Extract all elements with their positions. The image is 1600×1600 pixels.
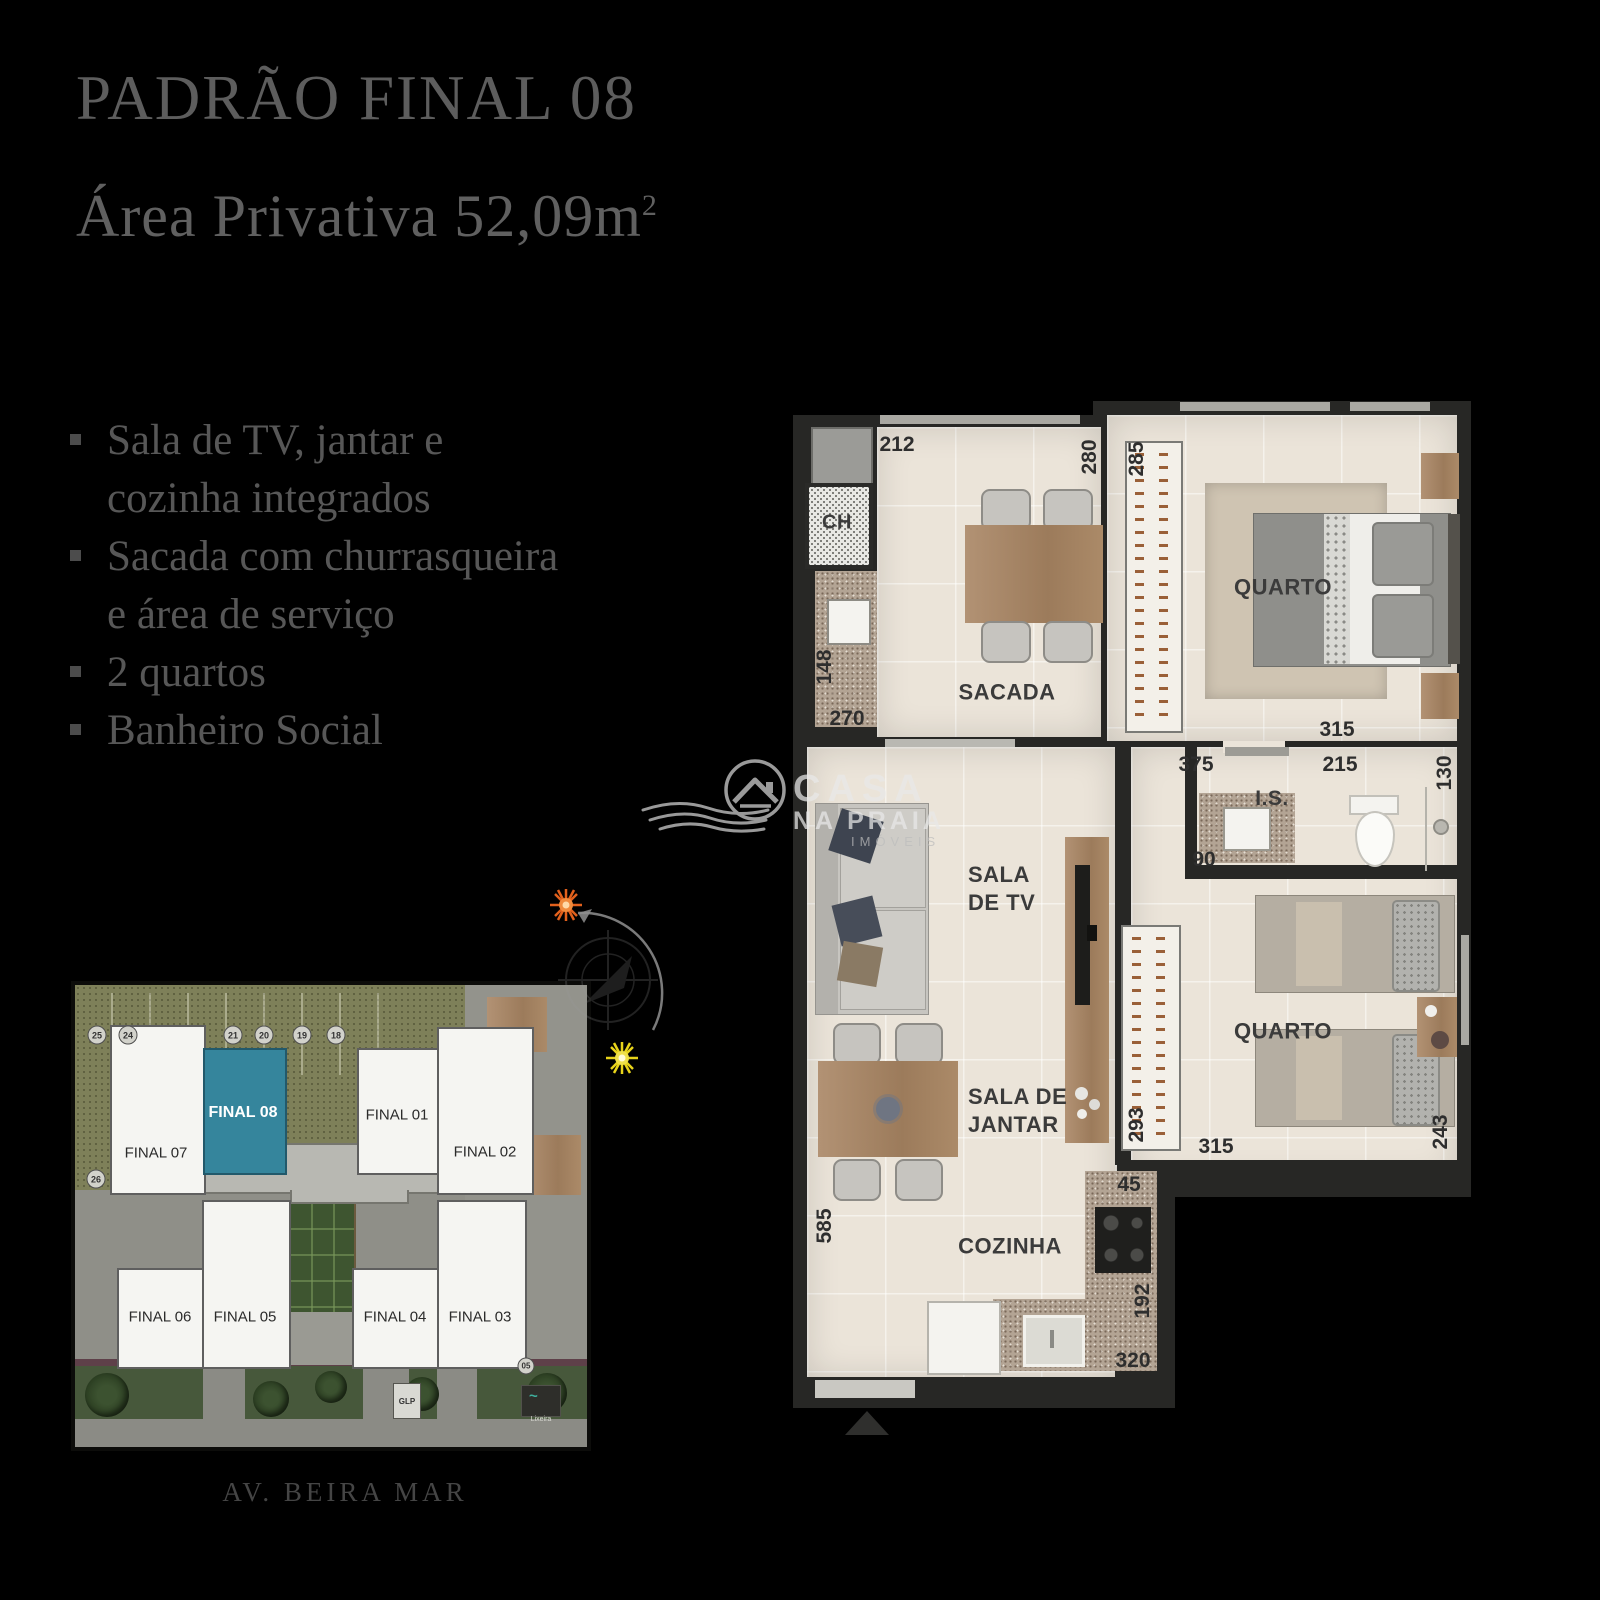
feature-text: 2 quartos <box>107 644 266 702</box>
unit-label-final-05: FINAL 05 <box>214 1309 277 1326</box>
dim-label: 280 <box>1078 439 1102 474</box>
pillow-tan <box>837 941 883 987</box>
unit-label-final-01: FINAL 01 <box>366 1107 429 1124</box>
unit-final-02 <box>437 1027 534 1195</box>
dim-label: 192 <box>1131 1283 1155 1318</box>
lixeira-label: Lixeira <box>521 1416 561 1423</box>
parking-spot-number: 24 <box>119 1026 138 1045</box>
vase <box>1431 1031 1449 1049</box>
tree-icon <box>315 1371 347 1403</box>
shower-head <box>1433 819 1449 835</box>
parking-spot-number: 21 <box>224 1026 243 1045</box>
dim-label: 130 <box>1433 755 1457 790</box>
logo-tagline: IMÓVEIS <box>851 834 940 848</box>
headboard <box>1448 514 1460 664</box>
unit-final-07 <box>110 1025 206 1195</box>
dim-label: 270 <box>829 707 864 731</box>
parking-spot-number: 18 <box>327 1026 346 1045</box>
entry-sill <box>815 1380 915 1398</box>
house-chimney-icon <box>766 782 773 793</box>
chair <box>895 1023 943 1065</box>
dim-label: 320 <box>1115 1349 1150 1373</box>
feature-item: Sala de TV, jantar e cozinha integrados <box>70 412 670 528</box>
parking-spot-number: 19 <box>293 1026 312 1045</box>
unit-final-05 <box>202 1200 291 1369</box>
bullet-square-icon <box>70 666 81 677</box>
dim-label: 585 <box>813 1208 837 1243</box>
dim-label: 148 <box>813 649 837 684</box>
faucet <box>1050 1330 1054 1348</box>
label-sala-tv: SALA DE TV <box>968 861 1035 916</box>
courtyard-path <box>287 1312 352 1365</box>
site-key-plan: FINAL 08 FINAL 07 FINAL 01 FINAL 02 FINA… <box>75 985 587 1447</box>
dim-label: 212 <box>879 433 914 457</box>
label-quarto-1: QUARTO <box>1234 573 1332 601</box>
label-quarto-2: QUARTO <box>1234 1017 1332 1045</box>
tv-rack <box>1065 837 1109 1143</box>
dim-label: 215 <box>1322 753 1357 777</box>
chair <box>833 1023 881 1065</box>
dim-label: 45 <box>1117 1173 1140 1197</box>
trash-enclosure: ~ <box>521 1385 561 1417</box>
entry-arrow-icon <box>845 1411 889 1435</box>
dim-label: 243 <box>1429 1114 1453 1149</box>
bed-blanket-fold <box>1296 902 1342 986</box>
wave-icon <box>660 824 764 831</box>
compass-rose-icon <box>558 930 658 1030</box>
sunrise-sun-icon <box>606 1042 638 1074</box>
label-sala-jantar: SALA DE JANTAR <box>968 1083 1067 1138</box>
kitchen-sink <box>1023 1315 1085 1367</box>
unit-label-final-03: FINAL 03 <box>449 1309 512 1326</box>
dim-label: 285 <box>1125 441 1149 476</box>
courtyard-garden <box>287 1200 356 1314</box>
window <box>880 415 1080 424</box>
parking-spot-number: 26 <box>87 1170 106 1189</box>
arrowhead-icon <box>578 909 592 923</box>
decor-circle <box>1077 1109 1087 1119</box>
dining-table <box>818 1061 958 1157</box>
unit-label-final-06: FINAL 06 <box>129 1309 192 1326</box>
page-title: PADRÃO FINAL 08 <box>76 62 637 135</box>
area-subtitle: Área Privativa 52,09m2 <box>76 182 658 251</box>
watermark-logo: CASA NA PRAIA IMÓVEIS <box>638 748 968 848</box>
lobby-entry <box>290 1190 409 1204</box>
shower-divider <box>1425 787 1427 871</box>
sidewalk <box>75 1419 587 1447</box>
nightstand-knob <box>1425 1005 1437 1017</box>
nightstand <box>1417 997 1457 1057</box>
area-subtitle-sup: 2 <box>642 189 658 222</box>
parking-spot-number: 25 <box>88 1026 107 1045</box>
bathroom-sink <box>1223 807 1271 851</box>
unit-label-final-04: FINAL 04 <box>364 1309 427 1326</box>
logo-name: CASA <box>793 768 929 810</box>
tv-mount <box>1087 925 1097 941</box>
closet <box>1125 441 1183 733</box>
bullet-square-icon <box>70 724 81 735</box>
door-leaf <box>1225 747 1289 756</box>
pillow <box>1372 594 1434 658</box>
feature-text: Sacada com churrasqueira e área de servi… <box>107 528 558 644</box>
nightstand <box>1421 453 1459 499</box>
dim-label: 90 <box>1192 848 1215 872</box>
sliding-door <box>885 739 1015 747</box>
cooktop <box>1095 1207 1151 1273</box>
dim-label: 293 <box>1125 1107 1149 1142</box>
closet-hangers <box>1135 453 1144 719</box>
feature-text: Banheiro Social <box>107 702 383 760</box>
dim-label: 315 <box>1198 1135 1233 1159</box>
label-churrasqueira: CH <box>822 511 852 536</box>
spot-number: 05 <box>518 1358 535 1375</box>
logo-name2: NA PRAIA <box>793 807 945 835</box>
balcony-table <box>965 525 1103 623</box>
sunset-sun-icon <box>550 889 582 921</box>
dim-label: 315 <box>1319 718 1354 742</box>
bed-blanket-fold <box>1296 1036 1342 1120</box>
unit-final-03 <box>437 1200 527 1369</box>
chair <box>895 1159 943 1201</box>
logo-circle <box>726 761 784 819</box>
chair <box>833 1159 881 1201</box>
feature-list: Sala de TV, jantar e cozinha integrados … <box>70 412 670 760</box>
closet-hangers <box>1159 453 1168 719</box>
label-cozinha: COZINHA <box>958 1232 1062 1260</box>
fridge <box>927 1301 1001 1375</box>
closet-hangers <box>1156 937 1165 1137</box>
unit-label-final-08: FINAL 08 <box>208 1104 277 1122</box>
feature-text: Sala de TV, jantar e cozinha integrados <box>107 412 443 528</box>
unit-label-final-07: FINAL 07 <box>125 1145 188 1162</box>
decor-circle <box>1089 1099 1100 1110</box>
nightstand <box>1421 673 1459 719</box>
decor-circle <box>1075 1087 1088 1100</box>
bullet-square-icon <box>70 434 81 445</box>
feature-item: Banheiro Social <box>70 702 670 760</box>
wall <box>1185 865 1457 879</box>
tree-icon <box>85 1373 129 1417</box>
area-subtitle-text: Área Privativa 52,09m <box>76 183 642 249</box>
feature-item: Sacada com churrasqueira e área de servi… <box>70 528 670 644</box>
pillow <box>1392 900 1440 992</box>
tree-icon <box>253 1381 289 1417</box>
window <box>1461 935 1469 1045</box>
parking-spot-number: 20 <box>255 1026 274 1045</box>
dim-label: 375 <box>1178 753 1213 777</box>
chair <box>981 621 1031 663</box>
window <box>1350 402 1430 411</box>
table-centerpiece <box>876 1097 900 1121</box>
label-sacada: SACADA <box>958 678 1055 706</box>
glp-box: GLP <box>393 1383 421 1419</box>
feature-item: 2 quartos <box>70 644 670 702</box>
chair <box>1043 621 1093 663</box>
pillow <box>1372 522 1434 586</box>
window <box>1180 402 1330 411</box>
wall <box>1117 1160 1471 1182</box>
bullet-square-icon <box>70 550 81 561</box>
sun-path-diagram <box>528 865 718 1080</box>
wave-glyph-icon: ~ <box>529 1388 538 1405</box>
label-is: I.S. <box>1255 786 1289 812</box>
street-label: AV. BEIRA MAR <box>210 1477 480 1508</box>
casa-na-praia-logo-icon: CASA NA PRAIA IMÓVEIS <box>638 748 968 848</box>
unit-label-final-02: FINAL 02 <box>454 1144 517 1161</box>
floor-plan: CH SACADA QUARTO <box>785 395 1475 1480</box>
laundry-tank <box>827 599 871 645</box>
shaft <box>811 427 873 485</box>
slide: PADRÃO FINAL 08 Área Privativa 52,09m2 S… <box>0 0 1600 1600</box>
single-bed <box>1255 895 1455 993</box>
